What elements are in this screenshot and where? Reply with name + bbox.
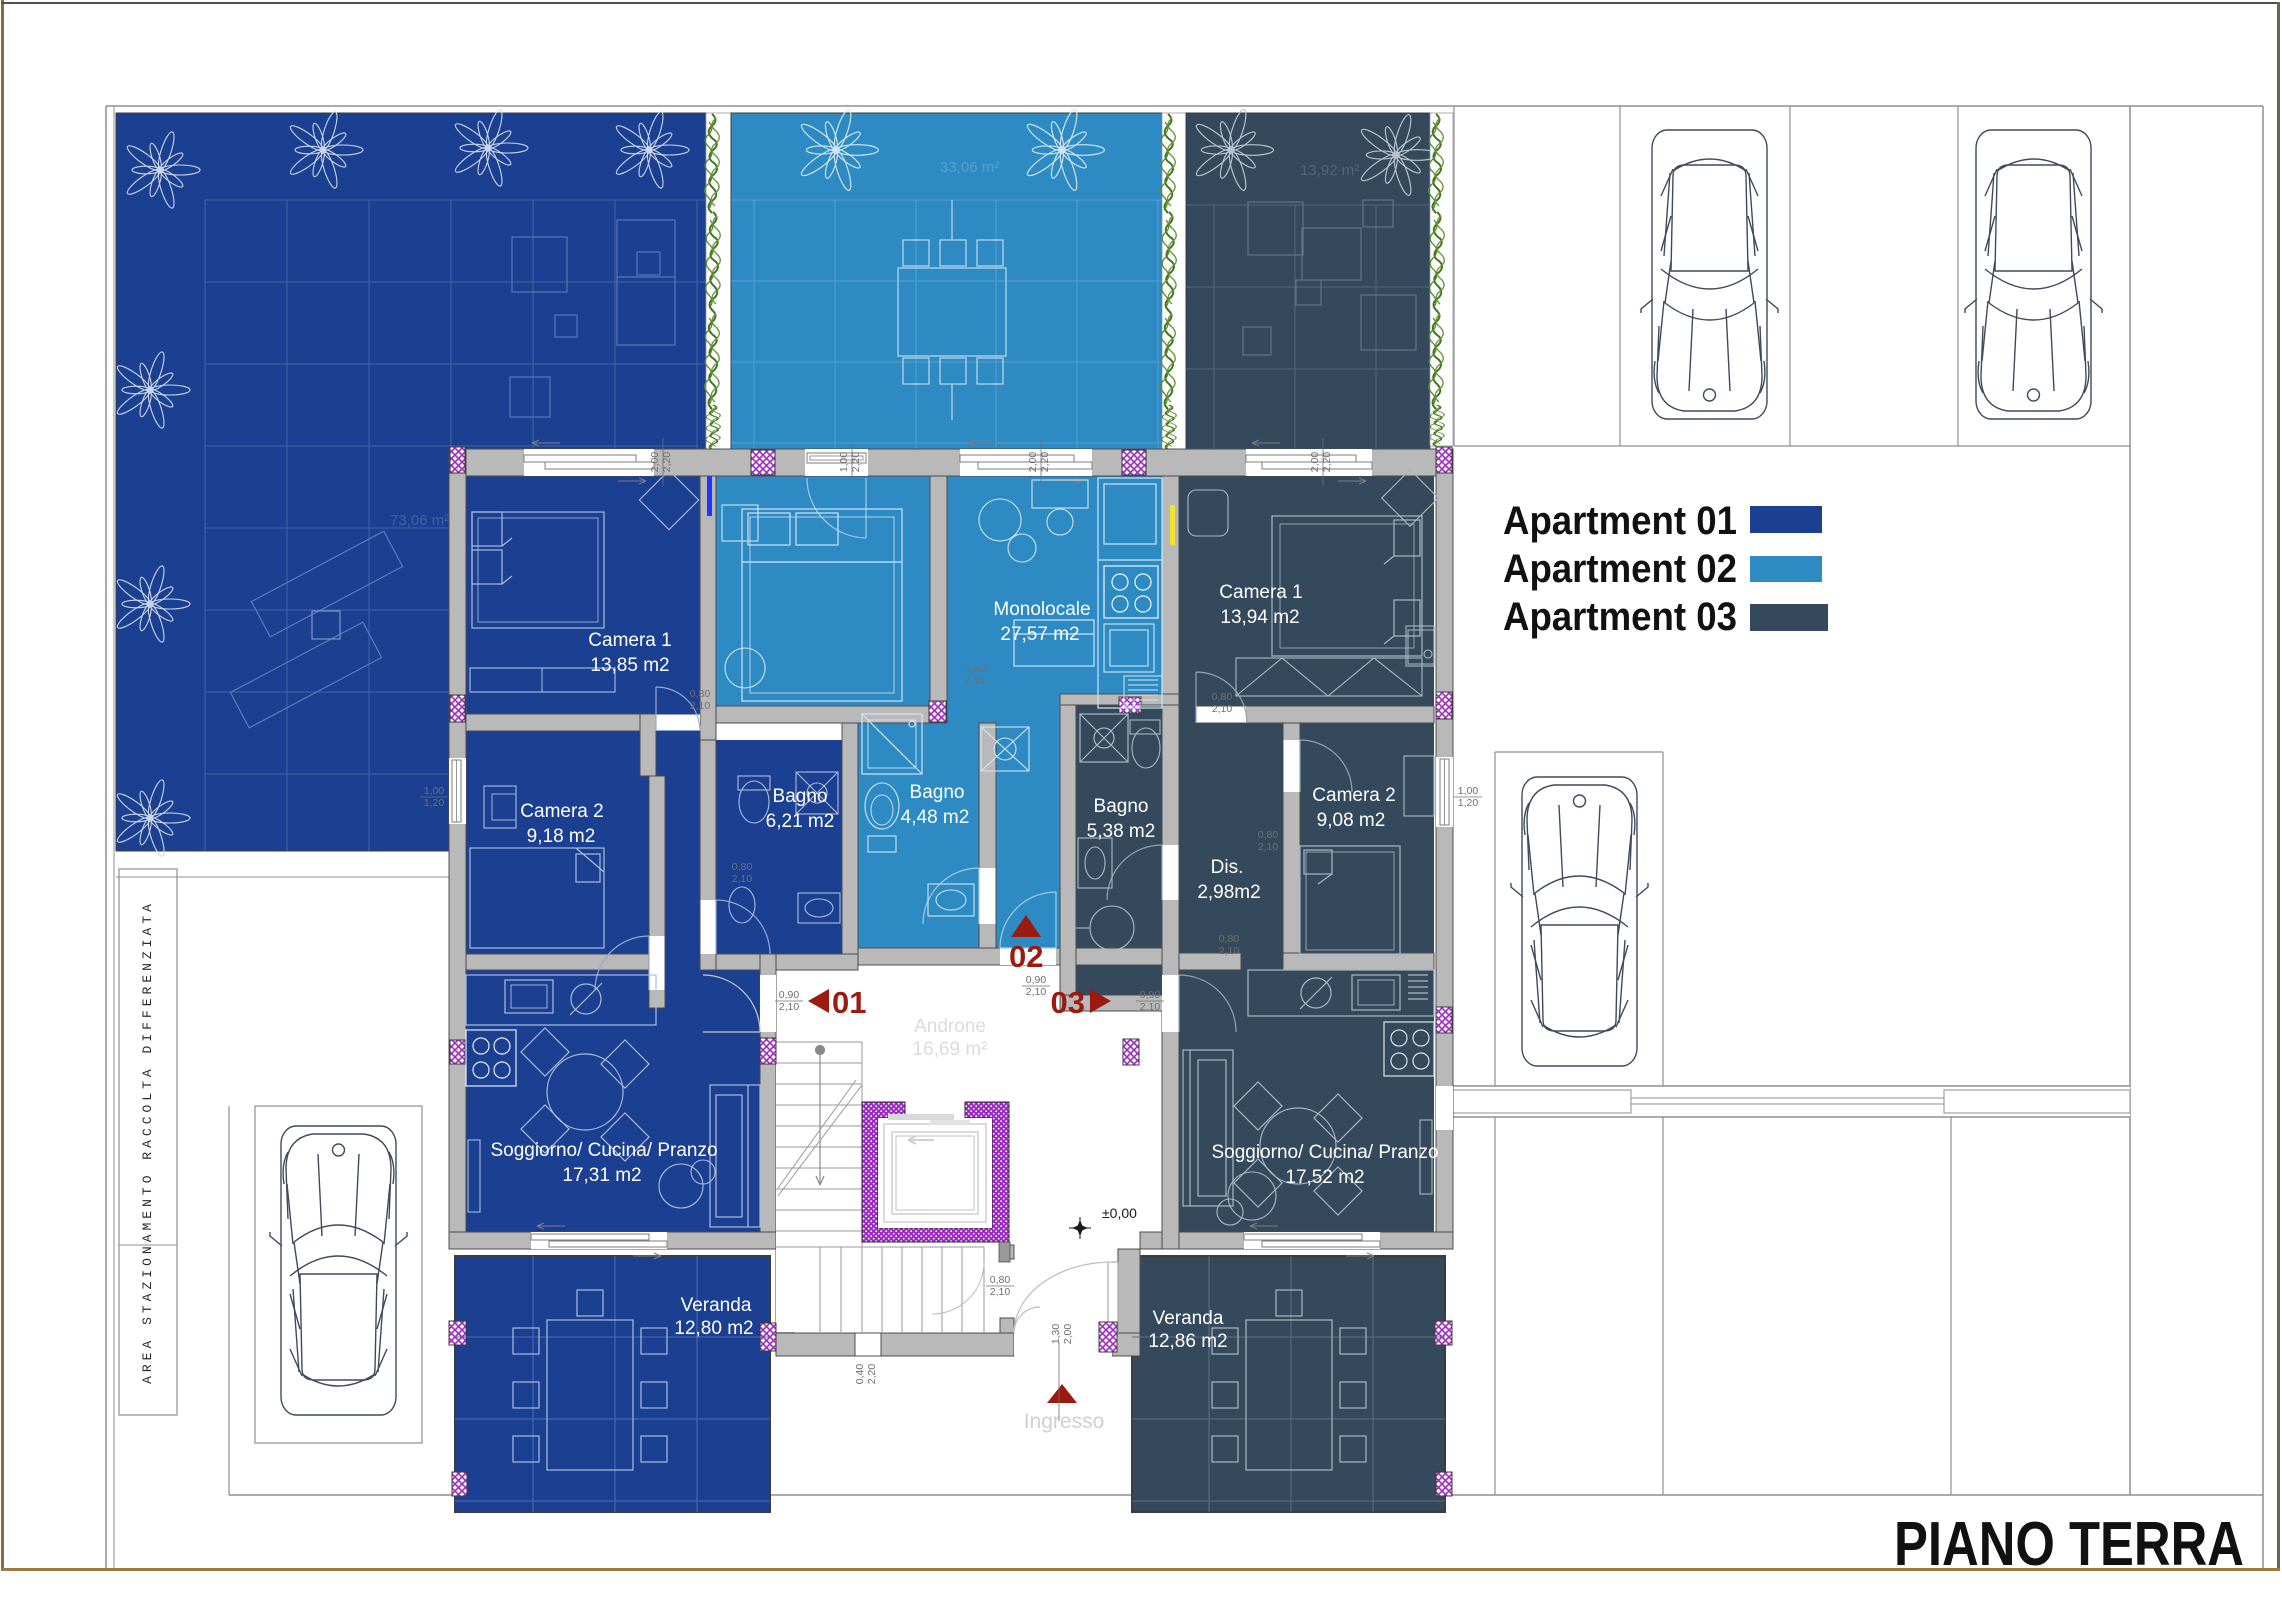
svg-text:17,31 m2: 17,31 m2 [562,1165,641,1186]
svg-text:2,00: 2,00 [1062,1324,1074,1345]
svg-text:5,38 m2: 5,38 m2 [1087,821,1156,842]
svg-text:Camera 1: Camera 1 [1219,582,1302,603]
svg-text:Camera 1: Camera 1 [588,630,671,651]
svg-text:Bagno: Bagno [1094,796,1149,817]
svg-text:0,90: 0,90 [1140,989,1161,1001]
svg-text:0,90: 0,90 [1026,974,1047,986]
svg-text:Camera 2: Camera 2 [1312,785,1395,806]
svg-text:9,18 m2: 9,18 m2 [527,826,596,847]
svg-text:Androne: Androne [914,1016,986,1037]
svg-text:6,21 m2: 6,21 m2 [766,811,835,832]
svg-text:12,80 m2: 12,80 m2 [674,1318,753,1339]
svg-text:Apartment 03: Apartment 03 [1503,595,1737,639]
svg-text:Camera 2: Camera 2 [520,801,603,822]
svg-text:2,10: 2,10 [779,1001,800,1013]
svg-text:02: 02 [1009,939,1043,974]
svg-text:Monolocale: Monolocale [993,599,1090,620]
svg-text:1,00: 1,00 [838,452,850,473]
svg-text:Dis.: Dis. [1211,857,1244,878]
svg-text:17,52 m2: 17,52 m2 [1285,1167,1364,1188]
svg-text:01: 01 [832,985,866,1020]
svg-text:2,10: 2,10 [732,873,753,885]
svg-text:13,85 m2: 13,85 m2 [590,655,669,676]
svg-text:33,06 m²: 33,06 m² [940,159,999,176]
svg-text:9,08 m2: 9,08 m2 [1317,810,1386,831]
svg-text:13,94 m2: 13,94 m2 [1220,607,1299,628]
svg-text:2,10: 2,10 [690,700,711,712]
svg-text:1,20: 1,20 [1458,797,1479,809]
svg-text:2,10: 2,10 [1140,1001,1161,1013]
svg-text:Ingresso: Ingresso [1024,1410,1105,1433]
svg-text:2,00: 2,00 [649,452,661,473]
svg-text:16,69 m²: 16,69 m² [913,1039,988,1060]
svg-text:73,06 m²: 73,06 m² [390,512,449,529]
svg-text:0,80: 0,80 [690,688,711,700]
svg-text:0,80: 0,80 [732,861,753,873]
svg-text:±0,00: ±0,00 [1102,1205,1137,1221]
svg-text:12,86 m2: 12,86 m2 [1148,1331,1227,1352]
svg-text:0,80: 0,80 [1212,691,1233,703]
svg-text:Soggiorno/ Cucina/ Pranzo: Soggiorno/ Cucina/ Pranzo [490,1140,717,1161]
svg-text:1,20: 1,20 [424,797,445,809]
svg-text:2,10: 2,10 [965,675,986,687]
svg-text:2,10: 2,10 [1212,703,1233,715]
svg-text:0,80: 0,80 [1258,829,1279,841]
svg-text:Apartment 02: Apartment 02 [1503,547,1737,591]
svg-text:2,10: 2,10 [990,1286,1011,1298]
svg-text:Apartment 01: Apartment 01 [1503,499,1737,543]
svg-text:Veranda: Veranda [1153,1308,1224,1329]
svg-text:Bagno: Bagno [910,782,965,803]
svg-text:0,80: 0,80 [1219,933,1240,945]
svg-text:2,20: 2,20 [866,1364,878,1385]
svg-text:27,57 m2: 27,57 m2 [1000,624,1079,645]
svg-text:0,80: 0,80 [990,1274,1011,1286]
svg-text:13,92 m²: 13,92 m² [1300,162,1359,179]
svg-text:2,00: 2,00 [1309,452,1321,473]
svg-text:AREA STAZIONAMENTO RACCOLTA DI: AREA STAZIONAMENTO RACCOLTA DIFFERENZIAT… [140,900,155,1384]
svg-text:2,10: 2,10 [1258,841,1279,853]
svg-text:0,80: 0,80 [965,663,986,675]
svg-text:1,00: 1,00 [1458,785,1479,797]
svg-text:0,90: 0,90 [779,989,800,1001]
svg-text:2,98m2: 2,98m2 [1197,882,1260,903]
svg-text:4,48 m2: 4,48 m2 [901,807,970,828]
svg-text:0,40: 0,40 [854,1364,866,1385]
svg-text:03: 03 [1051,985,1085,1020]
svg-text:2,10: 2,10 [1219,945,1240,957]
svg-text:2,00: 2,00 [1027,452,1039,473]
svg-text:Soggiorno/ Cucina/ Pranzo: Soggiorno/ Cucina/ Pranzo [1211,1142,1438,1163]
svg-text:Veranda: Veranda [681,1295,752,1316]
svg-text:1,30: 1,30 [1050,1324,1062,1345]
svg-text:Bagno: Bagno [773,786,828,807]
svg-text:2,10: 2,10 [1026,986,1047,998]
svg-text:1,00: 1,00 [424,785,445,797]
